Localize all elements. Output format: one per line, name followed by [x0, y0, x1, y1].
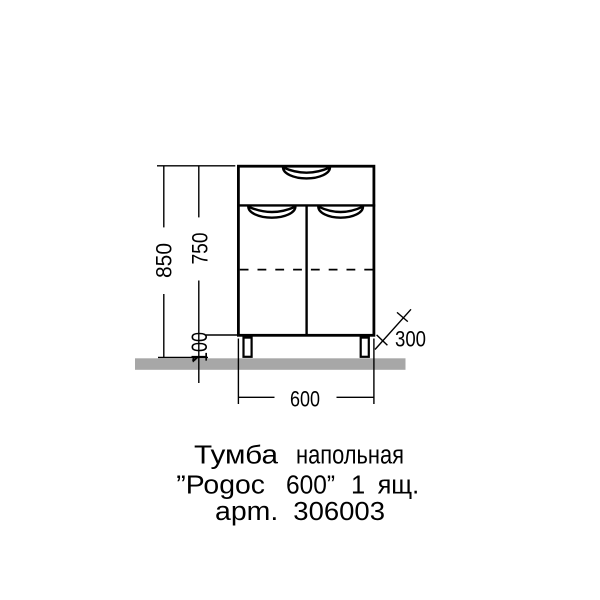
svg-text:750: 750	[187, 233, 212, 265]
svg-text:напольная: напольная	[296, 442, 404, 470]
svg-text:100: 100	[187, 332, 212, 362]
svg-text:306003: 306003	[293, 498, 385, 526]
svg-text:300: 300	[395, 327, 426, 352]
svg-text:арm.: арm.	[215, 498, 278, 526]
svg-text:600”: 600”	[286, 472, 335, 500]
svg-text:1: 1	[351, 472, 365, 500]
svg-text:Тумба: Тумба	[194, 442, 279, 470]
svg-text:850: 850	[152, 243, 177, 278]
svg-text:ящ.: ящ.	[378, 472, 420, 500]
svg-text:600: 600	[290, 386, 320, 411]
svg-text:”Роgос: ”Роgос	[176, 472, 265, 500]
